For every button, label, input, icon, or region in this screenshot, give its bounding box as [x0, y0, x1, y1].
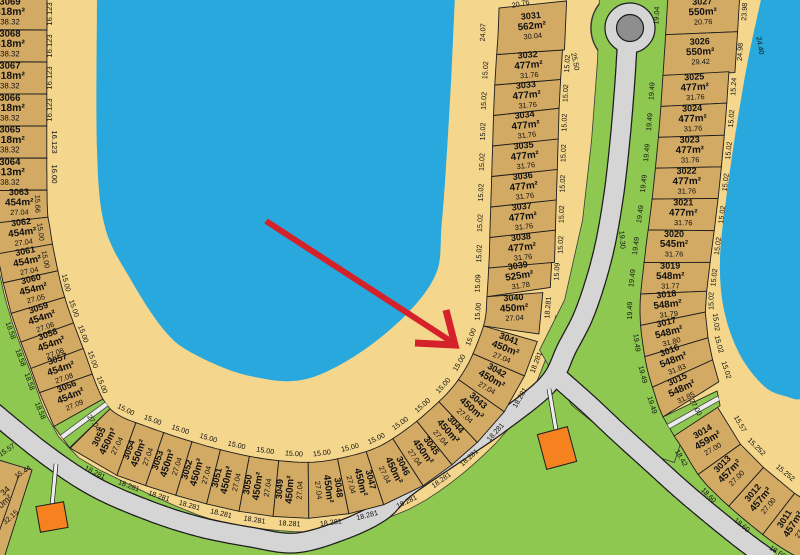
- svg-text:38.32: 38.32: [0, 178, 20, 187]
- svg-text:38.32: 38.32: [0, 17, 20, 26]
- svg-text:15.02: 15.02: [726, 109, 736, 128]
- svg-text:15.09: 15.09: [472, 274, 482, 293]
- svg-text:15.02: 15.02: [556, 236, 566, 254]
- svg-text:19.49: 19.49: [646, 82, 656, 101]
- svg-text:16.123: 16.123: [45, 98, 54, 121]
- svg-text:15.02: 15.02: [558, 175, 568, 193]
- svg-text:15.66: 15.66: [33, 195, 42, 213]
- svg-text:15.02: 15.02: [557, 205, 567, 223]
- svg-text:19.30: 19.30: [617, 230, 628, 249]
- svg-text:38.32: 38.32: [0, 113, 20, 122]
- svg-text:31.76: 31.76: [518, 100, 537, 111]
- svg-text:15.02: 15.02: [475, 214, 485, 232]
- svg-text:15.02: 15.02: [477, 153, 487, 171]
- svg-text:31.76: 31.76: [678, 186, 697, 195]
- svg-text:38.32: 38.32: [0, 146, 20, 155]
- svg-text:16.123: 16.123: [45, 66, 54, 89]
- svg-text:15.02: 15.02: [476, 183, 486, 201]
- svg-text:20.76: 20.76: [694, 17, 713, 27]
- svg-text:15.02: 15.02: [478, 122, 487, 140]
- svg-text:618m²: 618m²: [0, 103, 25, 114]
- svg-text:16.00: 16.00: [50, 164, 59, 183]
- svg-text:38.32: 38.32: [0, 81, 20, 90]
- svg-text:23.98: 23.98: [739, 2, 749, 21]
- svg-text:27.04: 27.04: [295, 481, 305, 500]
- svg-text:618m²: 618m²: [0, 39, 25, 50]
- svg-text:3021: 3021: [673, 197, 693, 207]
- svg-text:38.32: 38.32: [0, 49, 20, 58]
- svg-text:31.76: 31.76: [674, 218, 693, 227]
- svg-text:3026: 3026: [690, 36, 710, 47]
- svg-text:15.24: 15.24: [728, 77, 738, 96]
- svg-text:613m²: 613m²: [0, 167, 25, 178]
- svg-text:15.02: 15.02: [706, 292, 715, 310]
- svg-text:19.04: 19.04: [651, 6, 661, 25]
- svg-text:477m²: 477m²: [669, 208, 698, 219]
- svg-text:16.123: 16.123: [50, 130, 59, 153]
- svg-text:15.00: 15.00: [472, 302, 482, 321]
- svg-text:19.49: 19.49: [641, 143, 652, 162]
- svg-text:19.49: 19.49: [625, 302, 634, 320]
- svg-text:15.02: 15.02: [723, 141, 734, 160]
- svg-text:15.02: 15.02: [560, 84, 570, 102]
- svg-text:3020: 3020: [664, 229, 684, 239]
- svg-text:545m²: 545m²: [660, 239, 689, 250]
- svg-text:3063: 3063: [9, 187, 29, 197]
- svg-text:3040: 3040: [503, 292, 524, 303]
- svg-text:15.02: 15.02: [480, 61, 490, 80]
- svg-text:15.02: 15.02: [474, 244, 484, 262]
- svg-text:31.76: 31.76: [681, 155, 700, 164]
- svg-text:3019: 3019: [660, 261, 680, 271]
- svg-text:18.281: 18.281: [278, 518, 301, 528]
- svg-text:24.98: 24.98: [735, 43, 745, 62]
- svg-text:19.49: 19.49: [644, 113, 654, 132]
- svg-text:3025: 3025: [684, 71, 705, 82]
- svg-text:618m²: 618m²: [0, 135, 25, 146]
- svg-text:3023: 3023: [679, 134, 699, 145]
- svg-text:618m²: 618m²: [0, 7, 26, 18]
- svg-text:16.123: 16.123: [45, 34, 54, 57]
- svg-text:31.76: 31.76: [686, 92, 705, 102]
- svg-text:15.09: 15.09: [552, 262, 562, 281]
- svg-text:15.02: 15.02: [479, 92, 489, 110]
- svg-text:15.02: 15.02: [558, 144, 568, 162]
- svg-text:19.49: 19.49: [638, 174, 649, 193]
- svg-text:3022: 3022: [676, 166, 696, 176]
- svg-text:30.04: 30.04: [523, 31, 542, 42]
- svg-text:548m²: 548m²: [656, 271, 685, 282]
- svg-text:27.04: 27.04: [505, 313, 524, 323]
- svg-text:15.02: 15.02: [720, 173, 731, 192]
- svg-text:29.42: 29.42: [691, 57, 710, 67]
- svg-text:18.281: 18.281: [542, 296, 553, 319]
- svg-text:16.123: 16.123: [45, 2, 54, 25]
- svg-text:15.00: 15.00: [285, 448, 304, 458]
- svg-text:24.07: 24.07: [478, 23, 488, 41]
- svg-text:3024: 3024: [682, 103, 702, 114]
- svg-text:15.02: 15.02: [559, 113, 568, 131]
- svg-text:618m²: 618m²: [0, 71, 25, 82]
- svg-text:31.76: 31.76: [665, 250, 684, 259]
- svg-text:31.76: 31.76: [684, 124, 703, 134]
- svg-text:31.76: 31.76: [520, 70, 539, 80]
- svg-text:477m²: 477m²: [673, 176, 702, 187]
